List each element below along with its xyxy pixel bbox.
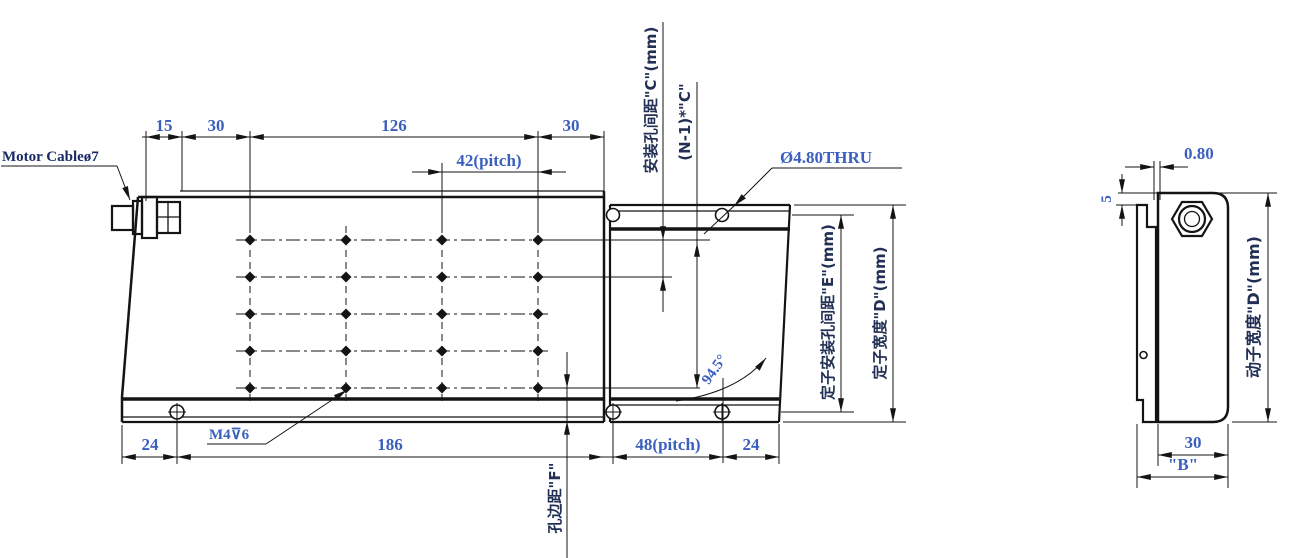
dim-30-left-label: 30 bbox=[208, 116, 225, 135]
dim-126-label: 126 bbox=[381, 116, 407, 135]
cable-connector bbox=[112, 197, 180, 238]
stator-hole-spacing-e-label: 定子安装孔间距"E"(mm) bbox=[819, 224, 837, 400]
mount-hole-spacing-c-label: 安装孔间距"C"(mm) bbox=[642, 27, 660, 174]
mover-width-d-label: 动子宽度"D"(mm) bbox=[1244, 236, 1263, 378]
n-minus-1-c-label: (N-1)*"C" bbox=[676, 83, 694, 160]
main-view: 15 30 126 30 42(pitch) 安装孔间距"C"(mm) (N-1… bbox=[1, 22, 906, 558]
dim-5-label: 5 bbox=[1099, 195, 1115, 203]
stator-top-hole-left bbox=[607, 209, 620, 222]
dim-b-label: "B" bbox=[1168, 455, 1198, 474]
dimension-0-80: 0.80 bbox=[1125, 144, 1214, 200]
dimensions-top: 15 30 126 30 42(pitch) bbox=[142, 116, 604, 226]
motor-cable-callout: Motor Cableø7 bbox=[1, 149, 130, 200]
thread-hole-label: M4⊽6 bbox=[209, 427, 250, 443]
side-body bbox=[1158, 193, 1228, 422]
dim-15-label: 15 bbox=[156, 116, 173, 135]
dim-186-label: 186 bbox=[377, 435, 403, 454]
stator-top-hole-right bbox=[716, 209, 729, 222]
dim-24-right-label: 24 bbox=[743, 435, 761, 454]
dim-30-side-label: 30 bbox=[1185, 433, 1202, 452]
hole-edge-f-label: 孔边距"F" bbox=[546, 463, 564, 534]
dimension-stator-width-d: 定子宽度"D"(mm) bbox=[783, 205, 906, 422]
dim-48-pitch-label: 48(pitch) bbox=[635, 435, 700, 454]
motor-cable-label: Motor Cableø7 bbox=[2, 149, 99, 165]
dim-0-80-label: 0.80 bbox=[1184, 144, 1214, 163]
engineering-drawing: 15 30 126 30 42(pitch) 安装孔间距"C"(mm) (N-1… bbox=[0, 0, 1290, 558]
dimension-mover-width-d: 动子宽度"D"(mm) bbox=[1232, 193, 1277, 422]
stator-width-d-label: 定子宽度"D"(mm) bbox=[871, 246, 889, 379]
dimension-b: "B" bbox=[1137, 424, 1228, 488]
stator-bottom-hole-left bbox=[604, 403, 622, 421]
thru-hole-callout: Ø4.80THRU bbox=[704, 148, 902, 234]
dim-30-right-label: 30 bbox=[563, 116, 580, 135]
dimension-5: 5 bbox=[1099, 174, 1139, 226]
center-lines bbox=[236, 226, 710, 402]
hex-nut bbox=[1172, 202, 1212, 236]
dim-24-left-label: 24 bbox=[142, 435, 160, 454]
drawing-canvas: 15 30 126 30 42(pitch) 安装孔间距"C"(mm) (N-1… bbox=[0, 0, 1290, 558]
mover-outline bbox=[122, 191, 604, 422]
dimension-stator-hole-spacing-e: 定子安装孔间距"E"(mm) bbox=[781, 215, 854, 412]
side-plate bbox=[1137, 205, 1156, 422]
dimension-hole-edge-f: 孔边距"F" bbox=[546, 352, 567, 558]
thru-hole-label: Ø4.80THRU bbox=[780, 148, 872, 167]
angle-label: 94.5° bbox=[699, 352, 731, 388]
stator-bottom-hole-right bbox=[713, 403, 731, 421]
rail-screw-hole bbox=[168, 403, 186, 421]
dim-42-pitch-label: 42(pitch) bbox=[456, 151, 521, 170]
side-view: 0.80 5 30 "B" 动子宽度"D"(mm) bbox=[1099, 144, 1277, 488]
